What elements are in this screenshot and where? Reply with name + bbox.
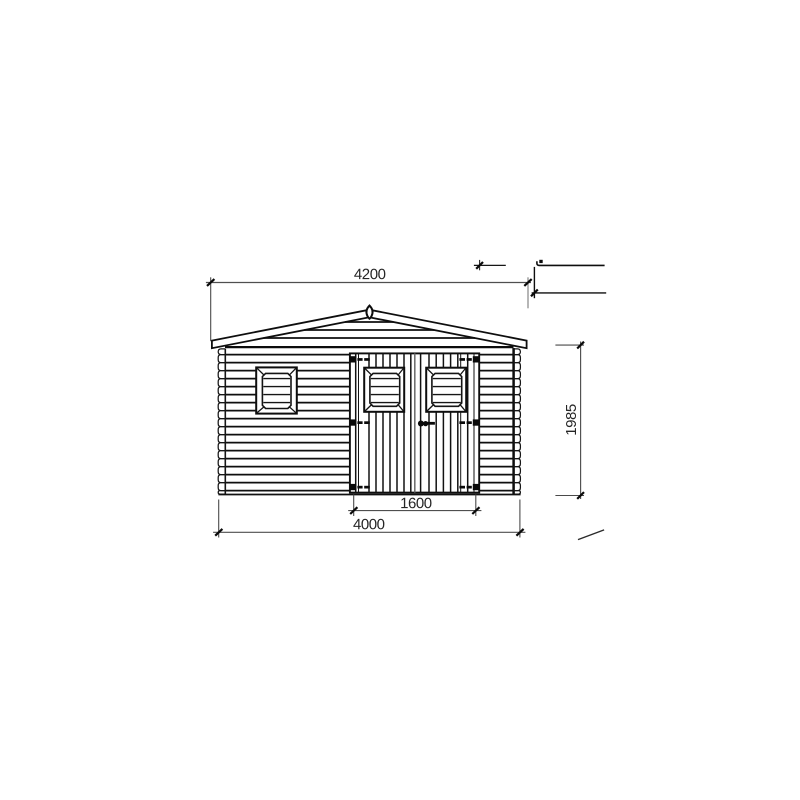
svg-text:1600: 1600 <box>400 495 432 512</box>
svg-text:4000: 4000 <box>353 516 385 533</box>
svg-text:1985: 1985 <box>563 404 580 436</box>
svg-text:4200: 4200 <box>354 266 386 283</box>
